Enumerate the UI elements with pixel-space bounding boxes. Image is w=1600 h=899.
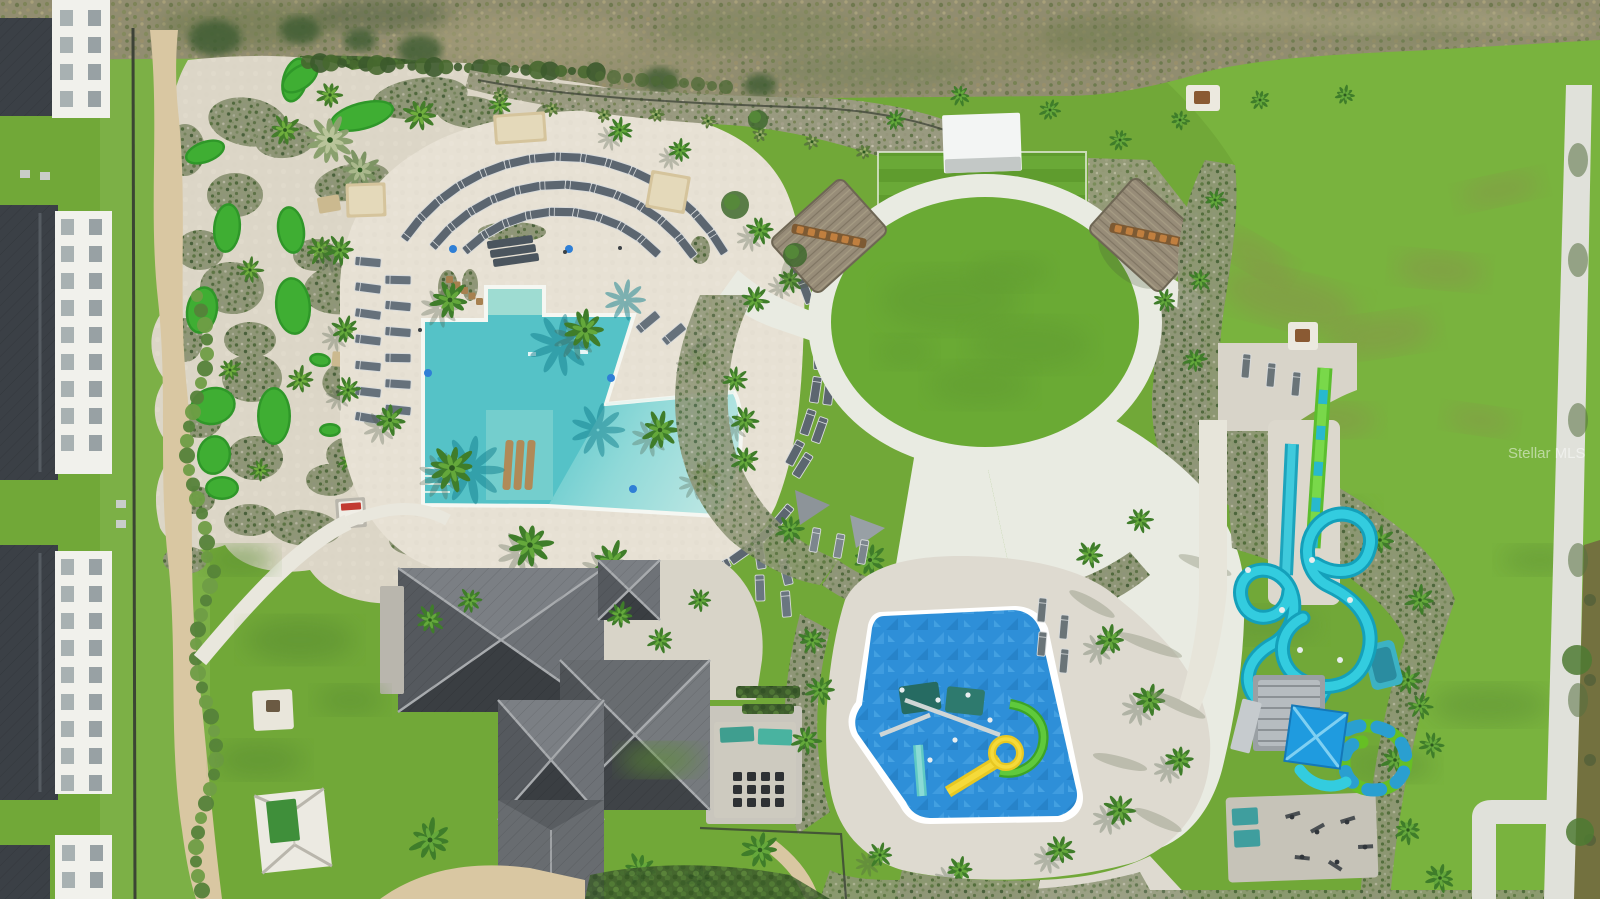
svg-text:Stellar MLS: Stellar MLS [1508, 445, 1586, 462]
